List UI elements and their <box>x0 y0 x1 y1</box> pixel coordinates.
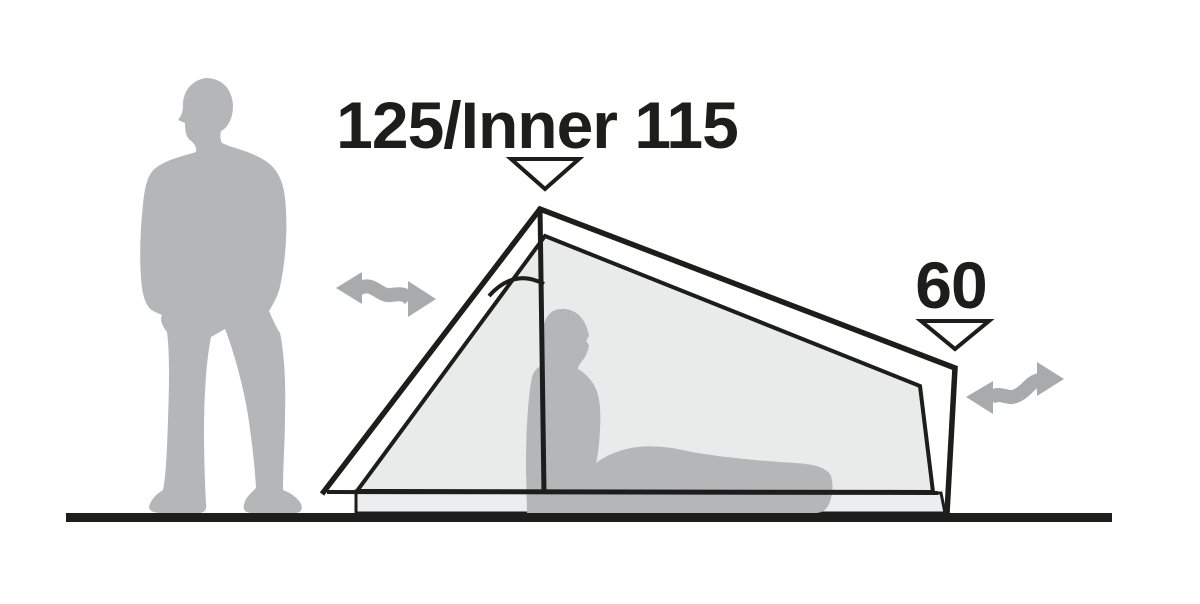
ground-line <box>66 513 1112 522</box>
rear-arrow-head-right <box>1037 362 1064 396</box>
front-arrow-head-left <box>336 272 362 304</box>
rear-arrow-head-left <box>966 381 993 414</box>
standing-person-silhouette <box>140 78 302 513</box>
fly-bottom-edge <box>327 492 938 493</box>
front-arrow-body <box>358 286 410 299</box>
tent-dimension-diagram: 125/Inner 115 60 <box>0 0 1200 604</box>
rear-height-marker-triangle-icon <box>921 321 989 349</box>
peak-height-label: 125/Inner 115 <box>287 92 787 158</box>
rear-arrow-body <box>991 380 1040 397</box>
rear-height-label: 60 <box>851 252 1051 318</box>
rear-entrance-arrow-icon <box>966 362 1064 414</box>
front-arrow-head-right <box>408 281 436 317</box>
peak-height-marker-triangle-icon <box>511 159 579 189</box>
front-entrance-arrow-icon <box>336 272 436 317</box>
